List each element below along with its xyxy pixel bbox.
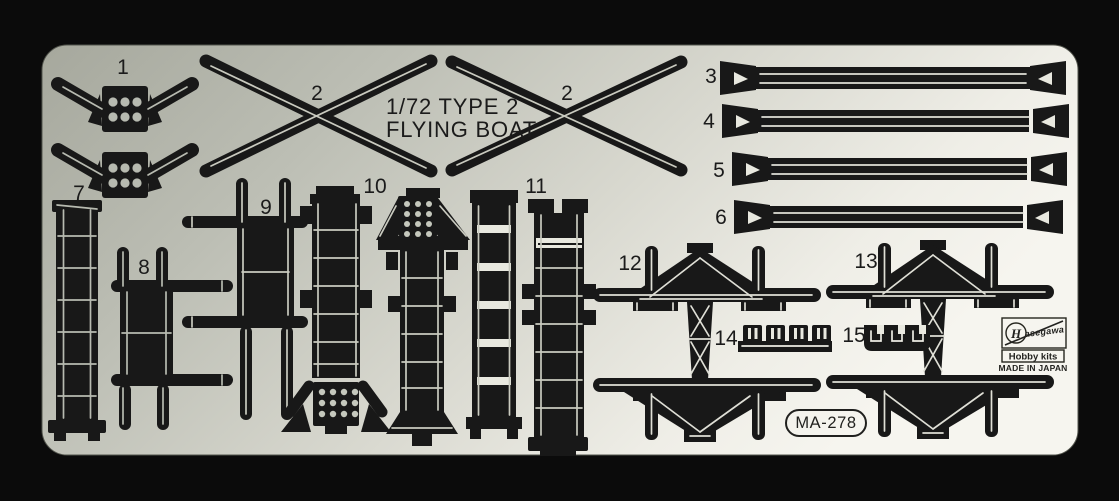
part-label-8: 8 <box>138 256 150 279</box>
part-label-10: 10 <box>363 175 386 198</box>
part-label-12: 12 <box>618 252 641 275</box>
part-label-13: 13 <box>854 250 877 273</box>
part-7-ladder <box>48 200 106 441</box>
part-label-5: 5 <box>713 159 725 182</box>
photo-canvas: MA-278 H asegawa Hobby kits MADE IN JAPA… <box>0 0 1119 501</box>
brand-hobby-kits: Hobby kits <box>1002 350 1064 363</box>
part-14-clip-strip <box>738 325 832 352</box>
part-label-9: 9 <box>260 196 272 219</box>
hobby-kits-label: Hobby kits <box>1009 352 1058 363</box>
part-label-4: 4 <box>703 110 715 133</box>
segmented-column <box>466 190 522 439</box>
part-label-1: 1 <box>117 56 129 79</box>
part-label-14: 14 <box>714 327 738 350</box>
etched-fret-photo: MA-278 H asegawa Hobby kits MADE IN JAPA… <box>0 0 1119 501</box>
sheet-code: MA-278 <box>795 414 856 432</box>
part-15-clip-strip <box>864 325 930 351</box>
sheet-title-line2: FLYING BOAT <box>386 117 537 142</box>
part-label-3: 3 <box>705 65 717 88</box>
sheet-title-line1: 1/72 TYPE 2 <box>386 94 519 119</box>
part-label-15: 15 <box>842 324 865 347</box>
part-label-6: 6 <box>715 206 727 229</box>
part-label-11: 11 <box>525 175 547 198</box>
part-label-2-left: 2 <box>311 82 323 105</box>
made-in-japan-label: MADE IN JAPAN <box>998 363 1067 373</box>
part-label-2-right: 2 <box>561 82 573 105</box>
part-label-7: 7 <box>73 182 85 205</box>
